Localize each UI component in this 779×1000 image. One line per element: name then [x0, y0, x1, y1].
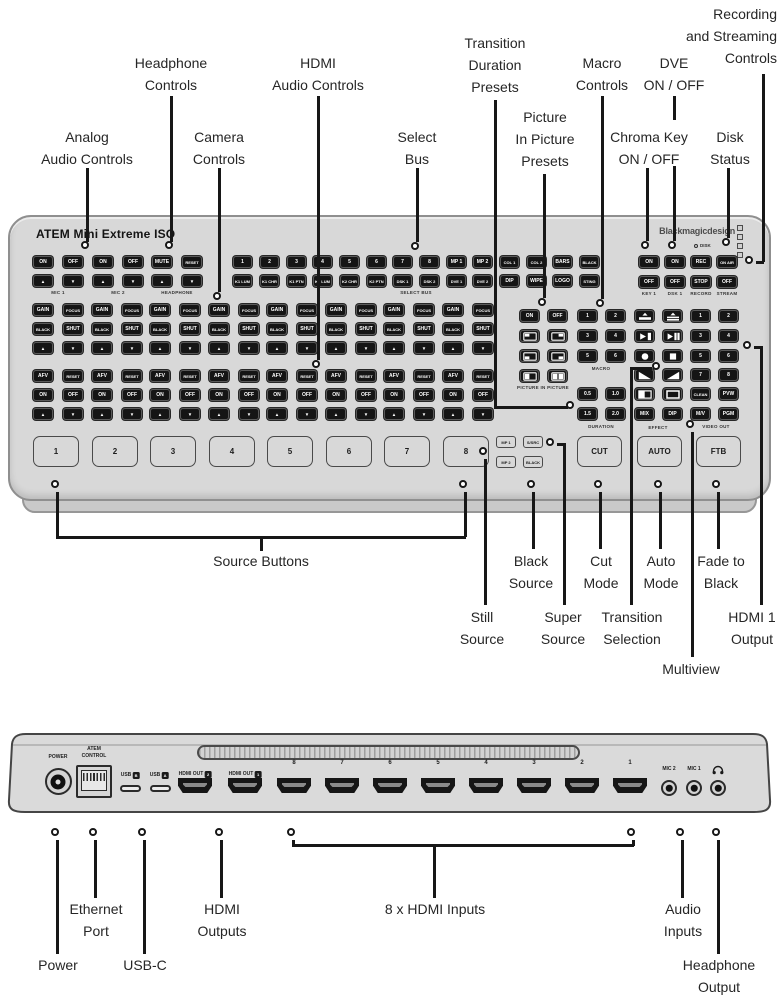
mp-2-button: MP 2	[496, 456, 516, 468]
camera4-down-button: ▼	[239, 342, 259, 354]
fade-to-black-callout-marker	[712, 480, 720, 488]
video-out-6-button: 6	[719, 350, 738, 362]
usb-c-callout-marker	[138, 828, 146, 836]
rec-stream-label-line: and Streaming	[686, 25, 777, 47]
select-bus-k2-ptn-button: K2 PTN	[367, 275, 386, 287]
hdmi_out_1-text: HDMI OUT	[229, 771, 254, 777]
effect-squeeze-right-button	[663, 330, 682, 342]
hdmi-input-4-label: 4	[484, 760, 487, 766]
camera7-shut-button: SHUT	[414, 323, 434, 335]
camera7-afv-button: AFV	[384, 370, 404, 382]
chroma-key-callout-marker	[641, 241, 649, 249]
still-source-label-line: Still	[460, 606, 504, 628]
rear-panel: POWERATEMCONTROLUSBBUSBAHDMI OUT2HDMI OU…	[0, 726, 779, 822]
ethernet-callout-line	[94, 840, 97, 898]
vent-square	[737, 225, 743, 231]
headphones-icon	[712, 762, 724, 772]
camera3-shut-button: SHUT	[180, 323, 200, 335]
pip-left-half-button	[520, 370, 539, 382]
hdmi-inputs-label: 8 x HDMI Inputs	[385, 898, 485, 920]
select-bus-label-line: Select	[398, 126, 437, 148]
hdmi-outputs-callout-line	[220, 840, 223, 898]
hdmi-audio-label: HDMIAudio Controls	[272, 52, 364, 96]
camera5-on-button: ON	[267, 389, 287, 401]
camera4-up-button: ▲	[209, 342, 229, 354]
audio-group-label-mic-1: MIC 1	[51, 290, 65, 295]
chroma-key-callout-line	[646, 168, 649, 241]
audio-headphone-mute-button: MUTE	[152, 256, 172, 268]
ethernet-label-line: Ethernet	[70, 898, 123, 920]
transition-duration-label-line: Transition	[465, 32, 526, 54]
hdmi-out-2-port	[178, 778, 212, 793]
transition-duration-label-line: Presets	[465, 76, 526, 98]
group-label-stream: STREAM	[717, 291, 738, 296]
headphone-controls-label-line: Controls	[135, 74, 207, 96]
multiview-label-line: Multiview	[662, 658, 720, 680]
hdmi-input-3-label: 3	[532, 760, 535, 766]
camera5-off-button: OFF	[297, 389, 317, 401]
disk-status-label-line: Status	[710, 148, 750, 170]
analog-audio-label-line: Analog	[41, 126, 133, 148]
mp-1-button: MP 1	[496, 436, 516, 448]
hdmi-input-8-port	[277, 778, 311, 793]
hdmi-outputs-label-line: HDMI	[197, 898, 246, 920]
transition-duration-label: TransitionDurationPresets	[465, 32, 526, 98]
power-label-line: Power	[38, 954, 78, 976]
audio-group-label-mic-2: MIC 2	[111, 290, 125, 295]
usb-b-port	[120, 785, 141, 792]
vent-grille	[197, 745, 580, 760]
camera4-shut-button: SHUT	[239, 323, 259, 335]
hdmi-input-6-port	[373, 778, 407, 793]
still-source-label: StillSource	[460, 606, 504, 650]
select-bus-mp-2-button: MP 2	[473, 256, 492, 268]
effect-diagonal-wipe-left-button	[635, 369, 654, 381]
camera7-up-button: ▲	[384, 408, 404, 420]
audio-inputs-callout-marker	[676, 828, 684, 836]
half-wipe-icon	[638, 390, 652, 399]
camera6-gain-button: GAIN	[326, 304, 346, 316]
camera3-afv-button: AFV	[150, 370, 170, 382]
video-out-clean-button: CLEAN	[691, 388, 710, 400]
still-source-callout-marker	[479, 447, 487, 455]
duration-1-5-button: 1.5	[578, 408, 597, 420]
macro-controls-label: MacroControls	[576, 52, 628, 96]
video-out-4-button: 4	[719, 330, 738, 342]
camera5-shut-button: SHUT	[297, 323, 317, 335]
mic-2-jack	[661, 780, 677, 796]
hdmi1-output-label: HDMI 1Output	[728, 606, 775, 650]
hdmi-slot	[570, 783, 594, 788]
headphone-controls-callout-marker	[165, 241, 173, 249]
camera6-shut-button: SHUT	[356, 323, 376, 335]
headphone-output-label: HeadphoneOutput	[683, 954, 755, 998]
cut-mode-label: CutMode	[583, 550, 618, 594]
camera6-focus-button: FOCUS	[356, 304, 376, 316]
black-button: BLACK	[523, 456, 543, 468]
pip-top-right-button	[548, 330, 567, 342]
camera8-up-button: ▲	[443, 408, 463, 420]
hdmi-inputs-label-line: 8 x HDMI Inputs	[385, 898, 485, 920]
chroma-key-label-line: Chroma Key	[610, 126, 688, 148]
rec-stream-callout-marker	[745, 256, 753, 264]
camera7-off-button: OFF	[414, 389, 434, 401]
vent-square	[737, 234, 743, 240]
source-buttons-callout-line	[56, 492, 59, 537]
ftb-button: FTB	[696, 436, 741, 467]
camera5-down-button: ▼	[297, 408, 317, 420]
group-label-record: RECORD	[690, 291, 711, 296]
dsk-1-off-button: OFF	[665, 276, 685, 288]
video-out-7-button: 7	[691, 369, 710, 381]
camera-controls-label-line: Controls	[193, 148, 245, 170]
rec-stream-callout-line	[762, 74, 765, 262]
camera2-on-button: ON	[92, 389, 112, 401]
camera6-on-button: ON	[326, 389, 346, 401]
audio-headphone-reset-button: RESET	[182, 256, 202, 268]
ethernet-port	[76, 765, 112, 798]
auto-mode-label-line: Auto	[643, 550, 678, 572]
multiview-callout-line	[691, 432, 694, 657]
diagonal-wipe-right-icon	[666, 371, 680, 380]
fade-to-black-label-line: Black	[697, 572, 744, 594]
record-stop-button: STOP	[691, 276, 711, 288]
vent-square	[737, 252, 743, 258]
hdmi-out-1-port	[228, 778, 262, 793]
transition-selection-label: TransitionSelection	[602, 606, 663, 650]
hdmi_out_1-badge: 1	[255, 771, 262, 778]
disk-status-label-line: Disk	[710, 126, 750, 148]
camera4-gain-button: GAIN	[209, 304, 229, 316]
rec-stream-callout-line	[756, 261, 764, 264]
ethernet-callout-marker	[89, 828, 97, 836]
select-bus-k1-lum-button: K1 LUM	[233, 275, 252, 287]
camera8-gain-button: GAIN	[443, 304, 463, 316]
black-source-label: BlackSource	[509, 550, 553, 594]
select-bus-5-button: 5	[340, 256, 359, 268]
camera3-down-button: ▼	[180, 342, 200, 354]
camera-controls-callout-line	[218, 168, 221, 292]
auto-button: AUTO	[637, 436, 682, 467]
hdmi-inputs-callout-line	[433, 844, 436, 898]
pip-presets-label-line: In Picture	[515, 128, 574, 150]
select-bus-7-button: 7	[393, 256, 412, 268]
duration-2-0-button: 2.0	[606, 408, 625, 420]
select-bus-sting-button: STING	[580, 275, 599, 287]
camera3-reset-button: RESET	[180, 370, 200, 382]
camera4-up-button: ▲	[209, 408, 229, 420]
select-bus-bars-button: BARS	[553, 256, 572, 268]
macro-6-button: 6	[606, 350, 625, 362]
hdmi-audio-label-line: Audio Controls	[272, 74, 364, 96]
hdmi1-output-callout-marker	[743, 341, 751, 349]
pip-split-button	[548, 370, 567, 382]
headphone-jack-hole	[715, 785, 722, 792]
super-source-label-line: Source	[541, 628, 585, 650]
power-jack-core	[56, 779, 61, 784]
hdmi-slot	[233, 783, 257, 788]
video-out-2-button: 2	[719, 310, 738, 322]
camera8-up-button: ▲	[443, 342, 463, 354]
select-bus-8-button: 8	[420, 256, 439, 268]
pip-left-half-icon	[523, 372, 537, 381]
key-1-off-button: OFF	[639, 276, 659, 288]
audio-inputs-label-line: Audio	[664, 898, 702, 920]
macro-4-button: 4	[606, 330, 625, 342]
camera3-off-button: OFF	[180, 389, 200, 401]
dve-callout-line	[673, 96, 676, 120]
camera3-focus-button: FOCUS	[180, 304, 200, 316]
hdmi-slot	[378, 783, 402, 788]
source-buttons-callout-marker	[51, 480, 59, 488]
camera7-gain-button: GAIN	[384, 304, 404, 316]
camera7-black-button: BLACK	[384, 323, 404, 335]
camera4-down-button: ▼	[239, 408, 259, 420]
s-src-button: S/SRC	[523, 436, 543, 448]
camera-controls-label-line: Camera	[193, 126, 245, 148]
square-icon	[666, 352, 680, 361]
audio-inputs-callout-line	[681, 840, 684, 898]
select-bus-label-line: Bus	[398, 148, 437, 170]
ethernet-port-label: CONTROL	[82, 753, 107, 759]
camera3-on-button: ON	[150, 389, 170, 401]
rec-stream-label: Recordingand StreamingControls	[686, 3, 777, 69]
pip-bottom-right-button	[548, 350, 567, 362]
camera2-up-button: ▲	[92, 342, 112, 354]
camera6-down-button: ▼	[356, 342, 376, 354]
stream-on-air-button: ON AIR	[717, 256, 737, 268]
mic-1-jack	[686, 780, 702, 796]
analog-audio-label-line: Audio Controls	[41, 148, 133, 170]
select-bus-mp-1-button: MP 1	[447, 256, 466, 268]
macro-2-button: 2	[606, 310, 625, 322]
effect-square-button	[663, 350, 682, 362]
pip-top-left-button	[520, 330, 539, 342]
power-callout-line	[56, 840, 59, 954]
hdmi-slot	[183, 783, 207, 788]
hdmi1-output-label-line: HDMI 1	[728, 606, 775, 628]
macro-5-button: 5	[578, 350, 597, 362]
audio-group-label-headphone: HEADPHONE	[161, 290, 192, 295]
camera1-down-button: ▼	[63, 408, 83, 420]
headphone-output-callout-line	[717, 840, 720, 954]
cut-mode-callout-line	[599, 492, 602, 549]
source-2-button: 2	[92, 436, 138, 467]
atem-mini-extreme-iso-diagram: ATEM Mini Extreme ISO Blackmagicdesign D…	[0, 0, 779, 1000]
source-3-button: 3	[150, 436, 196, 467]
camera5-focus-button: FOCUS	[297, 304, 317, 316]
hdmi-out-1-label: HDMI OUT1	[229, 771, 262, 778]
camera6-off-button: OFF	[356, 389, 376, 401]
select-bus-black-button: BLACK	[580, 256, 599, 268]
camera3-black-button: BLACK	[150, 323, 170, 335]
hdmi-input-7-label: 7	[340, 760, 343, 766]
hdmi-input-1-port	[613, 778, 647, 793]
camera8-down-button: ▼	[473, 342, 493, 354]
usb_b-text: USB	[121, 772, 132, 778]
transition-duration-callout-line	[494, 406, 568, 409]
audio-headphone-up-button: ▲	[152, 275, 172, 287]
camera7-down-button: ▼	[414, 408, 434, 420]
fade-to-black-callout-line	[717, 492, 720, 549]
duration-section-label: DURATION	[588, 424, 614, 429]
camera2-reset-button: RESET	[122, 370, 142, 382]
camera1-on-button: ON	[33, 389, 53, 401]
camera1-shut-button: SHUT	[63, 323, 83, 335]
still-source-callout-line	[484, 459, 487, 605]
pip-bottom-left-button	[520, 350, 539, 362]
select-bus-k2-chr-button: K2 CHR	[340, 275, 359, 287]
hdmi-audio-callout-line	[317, 96, 320, 360]
camera8-down-button: ▼	[473, 408, 493, 420]
source-buttons-label: Source Buttons	[213, 550, 309, 572]
disk-status-label: DiskStatus	[710, 126, 750, 170]
auto-mode-callout-marker	[654, 480, 662, 488]
hdmi-slot	[330, 783, 354, 788]
auto-mode-label: AutoMode	[643, 550, 678, 594]
disk-status-led: DISK	[694, 243, 711, 248]
select-bus-label: SelectBus	[398, 126, 437, 170]
key-1-on-button: ON	[639, 256, 659, 268]
camera3-up-button: ▲	[150, 408, 170, 420]
chroma-key-label-line: ON / OFF	[610, 148, 688, 170]
pip-presets-label: PictureIn PicturePresets	[515, 106, 574, 172]
macro-controls-label-line: Controls	[576, 74, 628, 96]
macro-3-button: 3	[578, 330, 597, 342]
audio-mic-2-off-button: OFF	[123, 256, 143, 268]
camera2-afv-button: AFV	[92, 370, 112, 382]
black-source-label-line: Source	[509, 572, 553, 594]
video-out-section-label: VIDEO OUT	[702, 424, 729, 429]
diagonal-wipe-left-icon	[638, 371, 652, 380]
multiview-callout-marker	[686, 420, 694, 428]
usb_a-badge: A	[162, 772, 169, 779]
usb-c-label: USB-C	[123, 954, 167, 976]
camera6-down-button: ▼	[356, 408, 376, 420]
select-bus-callout-marker	[411, 242, 419, 250]
usb-c-callout-line	[143, 840, 146, 954]
camera4-focus-button: FOCUS	[239, 304, 259, 316]
super-source-label-line: Super	[541, 606, 585, 628]
effect-squeeze-up-button	[663, 310, 682, 322]
camera1-up-button: ▲	[33, 408, 53, 420]
pip-presets-callout-line	[543, 174, 546, 298]
ethernet-port-pins	[83, 773, 106, 781]
video-out-1-button: 1	[691, 310, 710, 322]
transition-selection-callout-line	[630, 367, 633, 605]
pip-presets-callout-marker	[538, 298, 546, 306]
hdmi-slot	[618, 783, 642, 788]
camera8-black-button: BLACK	[443, 323, 463, 335]
rec-stream-label-line: Controls	[686, 47, 777, 69]
select-bus-3-button: 3	[287, 256, 306, 268]
audio-inputs-label-line: Inputs	[664, 920, 702, 942]
camera8-on-button: ON	[443, 389, 463, 401]
hdmi-input-5-label: 5	[436, 760, 439, 766]
video-out-m-v-button: M/V	[691, 408, 710, 420]
disk-led-label: DISK	[700, 243, 711, 248]
select-bus-section-label: SELECT BUS	[400, 290, 432, 295]
hdmi-input-8-label: 8	[292, 760, 295, 766]
ethernet-port-label: ATEM	[87, 746, 101, 752]
video-out-pvw-button: PVW	[719, 388, 738, 400]
camera7-on-button: ON	[384, 389, 404, 401]
video-out-3-button: 3	[691, 330, 710, 342]
camera5-afv-button: AFV	[267, 370, 287, 382]
camera1-up-button: ▲	[33, 342, 53, 354]
source-7-button: 7	[384, 436, 430, 467]
dve-label-line: ON / OFF	[644, 74, 705, 96]
hdmi1-output-callout-line	[760, 346, 763, 605]
camera1-gain-button: GAIN	[33, 304, 53, 316]
cut-mode-label-line: Mode	[583, 572, 618, 594]
hdmi1-output-label-line: Output	[728, 628, 775, 650]
black-source-callout-line	[532, 492, 535, 549]
transition-selection-label-line: Selection	[602, 628, 663, 650]
analog-audio-callout-line	[86, 168, 89, 242]
audio-mic-1-on-button: ON	[33, 256, 53, 268]
squeeze-up-icon	[666, 312, 680, 321]
camera2-up-button: ▲	[92, 408, 112, 420]
macro-controls-callout-line	[601, 96, 604, 299]
camera2-off-button: OFF	[122, 389, 142, 401]
camera7-reset-button: RESET	[414, 370, 434, 382]
camera6-up-button: ▲	[326, 342, 346, 354]
squeeze-right-icon	[666, 332, 680, 341]
disk-status-callout-marker	[722, 238, 730, 246]
effect-wipe-right-button	[635, 330, 654, 342]
camera3-down-button: ▼	[180, 408, 200, 420]
source-buttons-callout-line	[260, 536, 263, 551]
hdmi-inputs-callout-marker	[627, 828, 635, 836]
usb-a-port	[150, 785, 171, 792]
rear-panel-body	[0, 726, 779, 822]
camera6-afv-button: AFV	[326, 370, 346, 382]
pip-top-right-icon	[551, 332, 565, 341]
usb-a-port-label: USBA	[150, 772, 169, 779]
camera5-reset-button: RESET	[297, 370, 317, 382]
ethernet-label: EthernetPort	[70, 898, 123, 942]
hdmi-outputs-label-line: Outputs	[197, 920, 246, 942]
select-bus-1-button: 1	[233, 256, 252, 268]
black-source-callout-marker	[527, 480, 535, 488]
camera7-up-button: ▲	[384, 342, 404, 354]
duration-0-5-button: 0.5	[578, 388, 597, 400]
macro-1-button: 1	[578, 310, 597, 322]
dve-callout-line	[673, 166, 676, 241]
camera5-gain-button: GAIN	[267, 304, 287, 316]
select-bus-col-1-button: COL 1	[500, 256, 519, 268]
pip-bottom-right-icon	[551, 352, 565, 361]
dsk-1-on-button: ON	[665, 256, 685, 268]
duration-1-0-button: 1.0	[606, 388, 625, 400]
pip-off-button: OFF	[548, 310, 567, 322]
hdmi-slot	[282, 783, 306, 788]
transition-duration-label-line: Duration	[465, 54, 526, 76]
audio-mic-1-off-button: OFF	[63, 256, 83, 268]
stream-off-button: OFF	[717, 276, 737, 288]
camera1-reset-button: RESET	[63, 370, 83, 382]
source-buttons-callout-line	[464, 492, 467, 537]
camera5-up-button: ▲	[267, 408, 287, 420]
audio-headphone-down-button: ▼	[182, 275, 202, 287]
hdmi-input-7-port	[325, 778, 359, 793]
rec-stream-label-line: Recording	[686, 3, 777, 25]
analog-audio-callout-marker	[81, 241, 89, 249]
camera8-shut-button: SHUT	[473, 323, 493, 335]
select-bus-2-button: 2	[260, 256, 279, 268]
headphone-jack	[710, 780, 726, 796]
